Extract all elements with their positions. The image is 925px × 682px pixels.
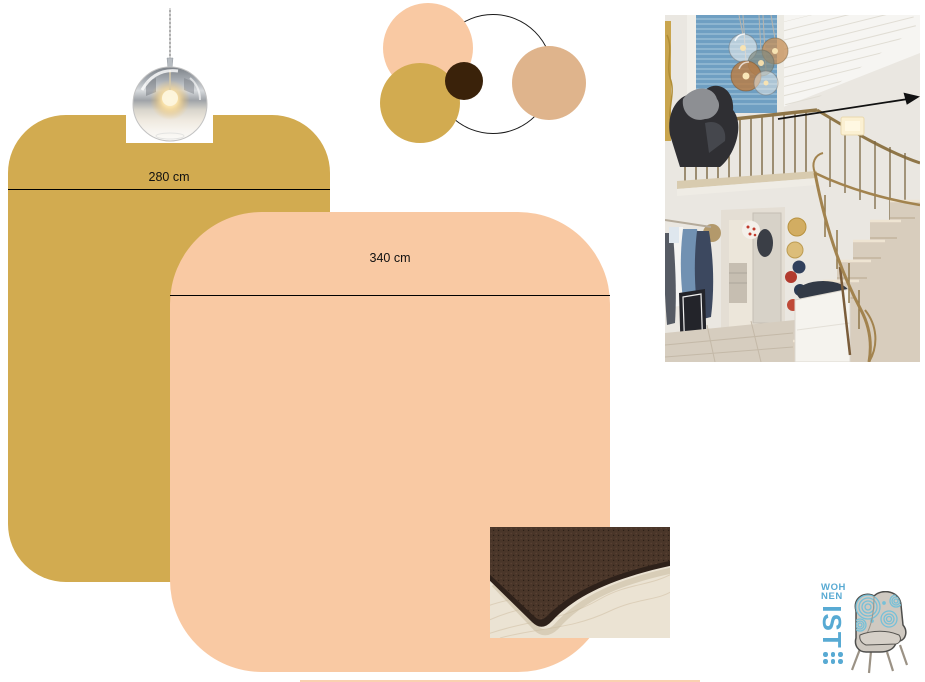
gold-rug-width-label: 280 cm	[8, 170, 330, 184]
staircase-illustration	[665, 15, 920, 362]
logo-word-ist: IST	[819, 597, 845, 657]
staircase-photo[interactable]	[665, 15, 920, 362]
rug-illustration	[490, 527, 670, 638]
bottom-edge-line	[300, 680, 700, 682]
peach-rug-width-label: 340 cm	[170, 251, 610, 265]
palette-circle-tan[interactable]	[512, 46, 586, 120]
arrowhead	[904, 93, 921, 105]
palette-circle-brown[interactable]	[445, 62, 483, 100]
armchair-icon	[844, 591, 912, 674]
annotation-arrow[interactable]	[770, 88, 925, 128]
lamp-bulb-glow	[162, 90, 178, 106]
rug-sample-photo[interactable]	[490, 527, 670, 638]
logo-ellipsis-dots-icon	[823, 652, 843, 664]
pendant-lamp-illustration	[126, 8, 213, 143]
moodboard-canvas: 280 cm 340 cm	[0, 0, 925, 682]
peach-rug-width-line	[170, 295, 610, 296]
pendant-lamp-photo[interactable]	[126, 8, 213, 143]
gold-rug-width-line	[8, 189, 330, 190]
